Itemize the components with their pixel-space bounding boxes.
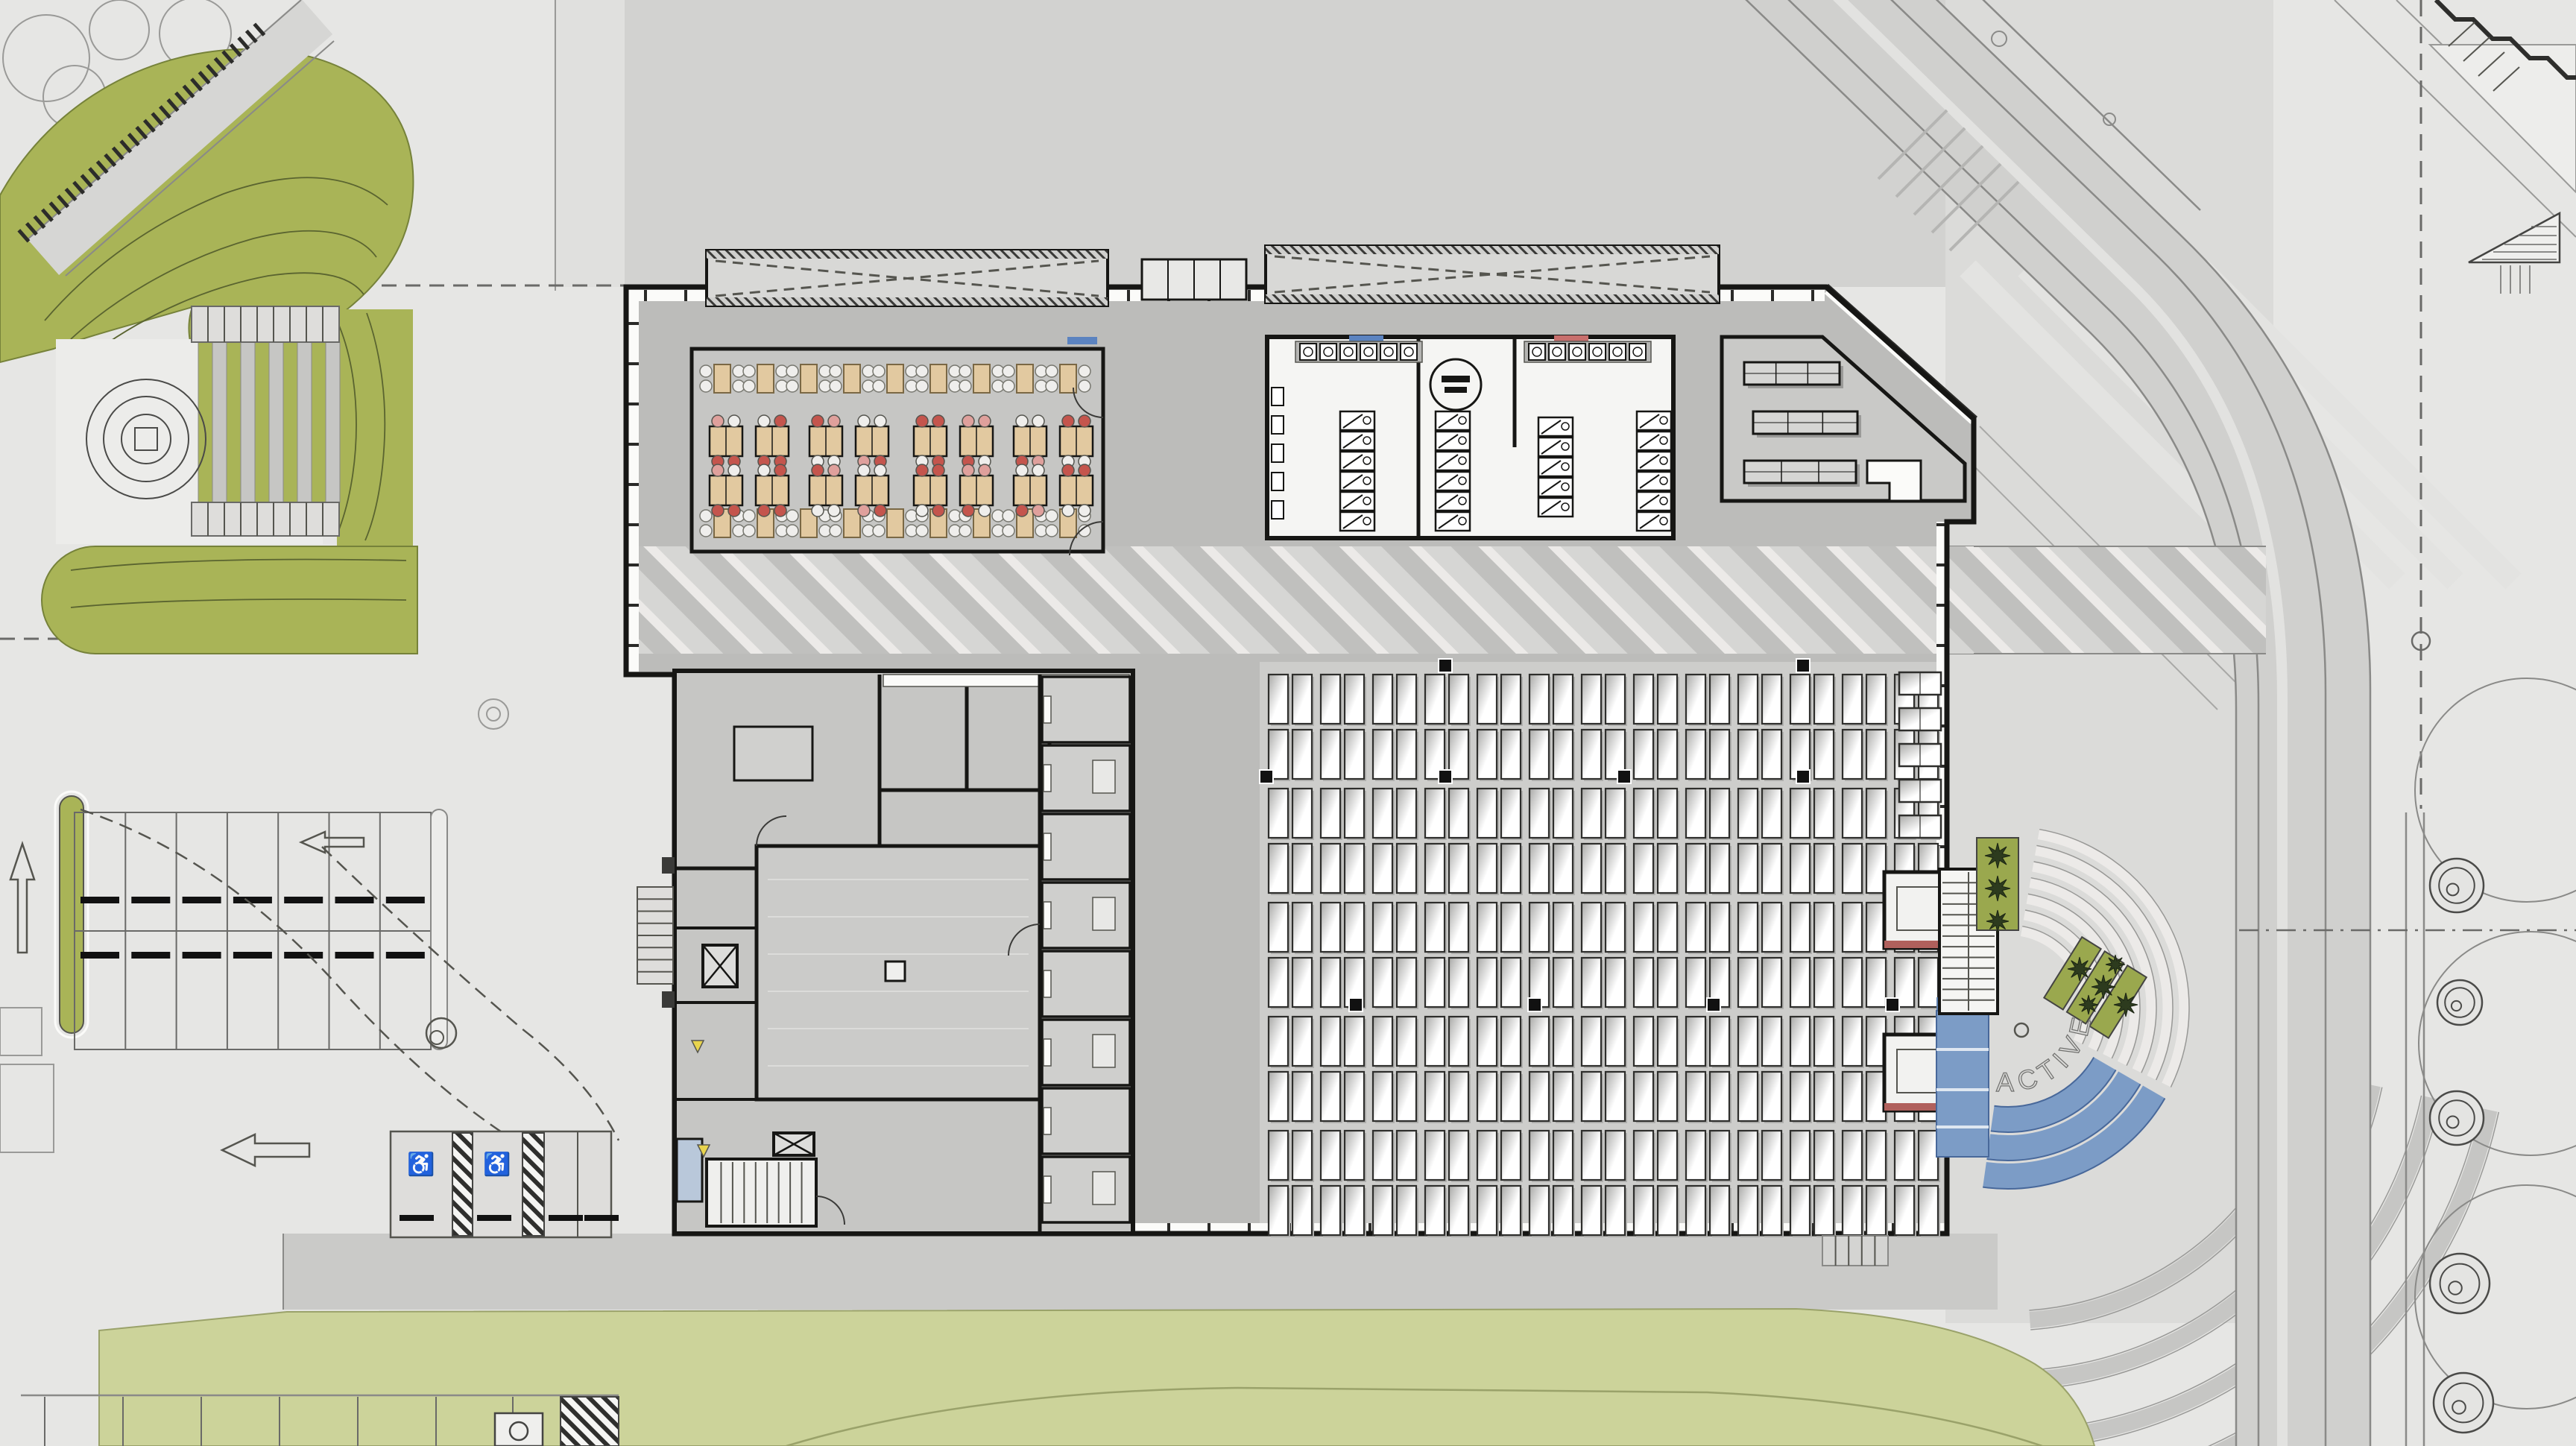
wheel-stop [477, 1215, 511, 1221]
stall-door [1044, 1039, 1051, 1066]
toilet-stall [1340, 512, 1374, 531]
vendor-stall [1042, 677, 1130, 742]
market-stall [1866, 730, 1886, 779]
chair [858, 464, 870, 476]
dining-table-small [844, 364, 860, 393]
market-stall [1373, 1072, 1392, 1121]
chair [828, 464, 840, 476]
chair [962, 415, 974, 427]
market-stall [1582, 958, 1601, 1007]
market-stall [1738, 958, 1758, 1007]
chair [712, 505, 724, 517]
market-stall [1373, 958, 1392, 1007]
market-stall [1501, 730, 1521, 779]
chair [1046, 525, 1058, 537]
market-stall [1425, 903, 1445, 952]
chair [1046, 365, 1058, 377]
play-ramp-strip [326, 342, 340, 502]
chair [1062, 415, 1074, 427]
wheel-stop [400, 1215, 434, 1221]
chair [758, 505, 770, 517]
market-stall [1762, 675, 1781, 724]
toilet-stall [1436, 492, 1470, 511]
wheel-stop [131, 952, 170, 959]
market-stall [1606, 1131, 1625, 1180]
toilet-stall [1436, 411, 1470, 430]
chair [812, 505, 824, 517]
toilet-stall [1538, 498, 1573, 517]
market-stall [1292, 789, 1312, 838]
chair [1079, 505, 1090, 517]
market-stall [1738, 1072, 1758, 1121]
chair [774, 464, 786, 476]
market-stall [1269, 675, 1288, 724]
market-stall [1345, 903, 1364, 952]
market-stall [1658, 675, 1677, 724]
market-stall [1397, 730, 1416, 779]
stair-room [707, 1159, 816, 1226]
market-stall [1843, 1131, 1862, 1180]
dining-room [692, 337, 1103, 555]
market-stall [1321, 1131, 1340, 1180]
market-stall [1686, 730, 1705, 779]
market-stall [1790, 958, 1810, 1007]
chair [962, 505, 974, 517]
market-stall [1634, 730, 1653, 779]
market-stall [1582, 1017, 1601, 1066]
terrace-steps [192, 306, 339, 342]
vendor-stall [1042, 814, 1130, 880]
market-stall [1477, 903, 1497, 952]
market-stall [1529, 1131, 1549, 1180]
plaza-west-strip [554, 0, 626, 287]
market-stall [1292, 730, 1312, 779]
sink [1589, 344, 1606, 360]
market-stall [1814, 903, 1834, 952]
chair [1032, 464, 1044, 476]
market-stall [1501, 958, 1521, 1007]
market-stall [1397, 903, 1416, 952]
stall-door [1044, 765, 1051, 792]
market-stall [1345, 730, 1364, 779]
chair [828, 505, 840, 517]
chair [916, 415, 928, 427]
chair [932, 415, 944, 427]
market-stall [1790, 675, 1810, 724]
market-stall [1529, 789, 1549, 838]
vendor-stall [1042, 883, 1130, 948]
interior-walkway [631, 546, 1974, 654]
market-stall [1606, 958, 1625, 1007]
conifer-tree [1985, 843, 2010, 868]
market-stall [1686, 789, 1705, 838]
market-stall [1658, 844, 1677, 893]
toilet-stall [1340, 411, 1374, 430]
chair [743, 365, 755, 377]
wheel-stop [131, 897, 170, 903]
service-room-blue [677, 1139, 702, 1202]
stall-door [1044, 696, 1051, 723]
sink [1340, 344, 1357, 360]
market-stall [1710, 789, 1729, 838]
market-stall [1449, 1072, 1468, 1121]
chair [1016, 505, 1028, 517]
chair [786, 365, 798, 377]
market-stall [1738, 675, 1758, 724]
toilet-stall [1637, 411, 1671, 430]
wheel-stop [80, 897, 119, 903]
fixture [1272, 501, 1284, 519]
playground [56, 306, 340, 544]
chair [786, 525, 798, 537]
market-stall [1686, 903, 1705, 952]
accessible-parking: ♿♿ [391, 1131, 619, 1237]
market-stall [1345, 1131, 1364, 1180]
market-stall [1321, 1186, 1340, 1235]
chair [874, 415, 886, 427]
market-stall [1553, 1186, 1573, 1235]
market-stall [1449, 1017, 1468, 1066]
market-stall [1425, 789, 1445, 838]
playground-strips [198, 342, 340, 502]
market-stall [1606, 675, 1625, 724]
market-stall [1866, 1131, 1886, 1180]
chair [979, 415, 991, 427]
market-stall [1710, 1186, 1729, 1235]
sink [1529, 344, 1545, 360]
market-stall [1553, 1072, 1573, 1121]
market-stall [1919, 1131, 1938, 1180]
chair [830, 365, 842, 377]
market-stall [1762, 844, 1781, 893]
market-stall [1553, 844, 1573, 893]
toilet-stall [1436, 512, 1470, 531]
market-stall [1686, 1017, 1705, 1066]
chair [700, 365, 712, 377]
chair [1079, 380, 1090, 392]
chair [959, 380, 971, 392]
market-stall [1790, 844, 1810, 893]
planting-strip [60, 796, 83, 1033]
market-stall [1397, 675, 1416, 724]
market-stall [1710, 730, 1729, 779]
market-stall [1501, 1017, 1521, 1066]
wheel-stop [584, 1215, 619, 1221]
market-stall [1321, 1017, 1340, 1066]
market-stall [1814, 675, 1834, 724]
chair [1079, 365, 1090, 377]
chair [786, 380, 798, 392]
market-stall [1477, 730, 1497, 779]
play-ramp-strip [312, 342, 326, 502]
market-stall [1292, 1131, 1312, 1180]
sink [1360, 344, 1377, 360]
chair [1062, 505, 1074, 517]
market-stall [1814, 958, 1834, 1007]
toilet-stall [1538, 417, 1573, 436]
wheel-stop [335, 952, 374, 959]
market-stall [1895, 1186, 1914, 1235]
market-stall [1321, 1072, 1340, 1121]
chair [979, 505, 991, 517]
play-ramp-strip [255, 342, 269, 502]
chair [1003, 525, 1014, 537]
toilet-stall [1340, 452, 1374, 470]
column [1439, 770, 1452, 783]
market-stall [1843, 789, 1862, 838]
dining-table-small [887, 509, 903, 537]
market-stall [1397, 958, 1416, 1007]
market-stall [1843, 1186, 1862, 1235]
equipment [1093, 1172, 1115, 1205]
dining-table-small [757, 364, 774, 393]
toilet-stall [1340, 432, 1374, 450]
toilet-stall [1637, 512, 1671, 531]
chair [743, 525, 755, 537]
market-stall [1762, 1186, 1781, 1235]
chair [962, 464, 974, 476]
market-stall [1477, 844, 1497, 893]
play-ramp-strip [269, 342, 283, 502]
market-stall [1269, 1131, 1288, 1180]
market-stall [1529, 903, 1549, 952]
market-stall [1762, 958, 1781, 1007]
market-stall [1292, 1017, 1312, 1066]
market-stall [1397, 1072, 1416, 1121]
stall-door [1044, 1108, 1051, 1134]
plaza-north [625, 0, 1948, 287]
toilet-stall [1538, 458, 1573, 476]
market-stall [1843, 675, 1862, 724]
market-stall [1738, 1017, 1758, 1066]
market-stall [1843, 903, 1862, 952]
chair [774, 415, 786, 427]
market-stall [1373, 789, 1392, 838]
chair [1003, 365, 1014, 377]
market-stall [1843, 1017, 1862, 1066]
market-stall [1814, 1186, 1834, 1235]
market-stall [1738, 730, 1758, 779]
wheel-stop [183, 897, 221, 903]
sink [1609, 344, 1626, 360]
conifer-tree [2106, 955, 2125, 974]
market-stall [1843, 1072, 1862, 1121]
accessible-icon: ♿ [483, 1151, 511, 1177]
market-stall [1738, 789, 1758, 838]
market-stall [1790, 903, 1810, 952]
market-stall [1292, 958, 1312, 1007]
play-ramp-strip [212, 342, 227, 502]
lawn [99, 1309, 2094, 1446]
chair [858, 415, 870, 427]
market-stall [1634, 1186, 1653, 1235]
market-stall [1501, 675, 1521, 724]
market-stall [1501, 789, 1521, 838]
market-stall [1606, 1186, 1625, 1235]
market-stall [1269, 789, 1288, 838]
market-stall [1790, 1072, 1810, 1121]
chair [786, 510, 798, 522]
market-stall [1321, 844, 1340, 893]
chair [1046, 380, 1058, 392]
chair [1016, 415, 1028, 427]
sink [1401, 344, 1417, 360]
vendor-stall [1042, 951, 1130, 1017]
market-stall [1269, 1072, 1288, 1121]
column [1707, 998, 1720, 1011]
accessible-icon: ♿ [407, 1151, 435, 1177]
market-stall [1292, 1072, 1312, 1121]
chair [916, 464, 928, 476]
market-stall [1529, 1072, 1549, 1121]
market-stall [1449, 903, 1468, 952]
cart-return [495, 1413, 543, 1446]
play-ramp-strip [227, 342, 241, 502]
market-stall [1449, 1186, 1468, 1235]
dining-table-small [1017, 364, 1033, 393]
market-stall [1449, 789, 1468, 838]
toilet-stall [1436, 452, 1470, 470]
toilet-stall [1538, 478, 1573, 496]
sink [1549, 344, 1565, 360]
market-stall [1269, 1017, 1288, 1066]
market-stall [1634, 1072, 1653, 1121]
market-stall [1373, 903, 1392, 952]
market-stall [1658, 1017, 1677, 1066]
market-stall [1582, 844, 1601, 893]
market-stall [1814, 789, 1834, 838]
chair [700, 510, 712, 522]
market-stall [1658, 1072, 1677, 1121]
market-stall [1919, 1186, 1938, 1235]
market-stall [1269, 1186, 1288, 1235]
market-stall [1373, 1186, 1392, 1235]
chair [1046, 510, 1058, 522]
canopy-east [1266, 246, 1719, 303]
market-stall [1738, 1131, 1758, 1180]
wheel-stop [335, 897, 374, 903]
market-stall [1843, 844, 1862, 893]
site-plan-drawing: ♿♿ [0, 0, 2576, 1446]
equipment [1093, 760, 1115, 793]
market-stall [1477, 1186, 1497, 1235]
market-stall [1321, 675, 1340, 724]
market-stall [1321, 903, 1340, 952]
market-stall [1866, 958, 1886, 1007]
blue-steps-straight [1936, 1011, 1989, 1157]
market-stall [1710, 1017, 1729, 1066]
chair [728, 415, 740, 427]
market-stall [1790, 789, 1810, 838]
chair [728, 464, 740, 476]
back-of-house [675, 671, 1133, 1234]
market-stall [1553, 675, 1573, 724]
chair [743, 380, 755, 392]
market-stall [1501, 903, 1521, 952]
market-stall [1634, 958, 1653, 1007]
market-stall [1843, 730, 1862, 779]
dining-table-small [930, 364, 947, 393]
market-stall [1814, 1017, 1834, 1066]
conifer-tree [1985, 876, 2010, 901]
market-stall [1582, 1186, 1601, 1235]
chair [959, 365, 971, 377]
market-stall [1345, 789, 1364, 838]
chair [743, 510, 755, 522]
market-stall [1658, 1186, 1677, 1235]
market-stall [1895, 1131, 1914, 1180]
market-stall [1397, 789, 1416, 838]
market-stall [1425, 1186, 1445, 1235]
stall-door [1044, 1176, 1051, 1203]
market-stall [1658, 903, 1677, 952]
market-stall [1292, 844, 1312, 893]
site-plan: ♿♿ [0, 0, 2576, 1446]
market-stall [1269, 903, 1288, 952]
market-stall [1762, 1131, 1781, 1180]
conifer-tree [2114, 993, 2138, 1017]
sink [1380, 344, 1397, 360]
chair [758, 464, 770, 476]
market-stall [1582, 675, 1601, 724]
market-stall [1658, 789, 1677, 838]
toilet-stall [1340, 492, 1374, 511]
market-stall [1710, 1131, 1729, 1180]
market-stall [1710, 903, 1729, 952]
market-stall [1843, 958, 1862, 1007]
market-stall [1397, 1186, 1416, 1235]
column [1617, 770, 1631, 783]
market-stall [1686, 958, 1705, 1007]
market-stall [1269, 844, 1288, 893]
market-stall [1582, 789, 1601, 838]
sink [1320, 344, 1336, 360]
chair [1016, 464, 1028, 476]
market-stall [1606, 903, 1625, 952]
toilet-stall [1538, 438, 1573, 456]
vendor-stall [1042, 1020, 1130, 1085]
toilet-stall [1637, 432, 1671, 450]
market-stall [1425, 1017, 1445, 1066]
market-stall [1397, 1131, 1416, 1180]
market-stall [1634, 903, 1653, 952]
chair [874, 464, 886, 476]
wheel-stop [233, 952, 272, 959]
market-stall [1425, 844, 1445, 893]
market-stall [1449, 844, 1468, 893]
wheel-stop [233, 897, 272, 903]
stall-door [1044, 902, 1051, 929]
column [1796, 770, 1810, 783]
chair [916, 380, 928, 392]
fixture [1272, 444, 1284, 462]
access-aisle [452, 1133, 473, 1236]
chair [812, 464, 824, 476]
column [1260, 770, 1273, 783]
chair [830, 525, 842, 537]
toilet-stall [1637, 452, 1671, 470]
market-stall [1529, 1017, 1549, 1066]
market-stall [1762, 789, 1781, 838]
conifer-tree [2068, 957, 2092, 981]
chair [858, 505, 870, 517]
market-stall [1686, 675, 1705, 724]
se-steps [1822, 1236, 1888, 1266]
chair [873, 525, 885, 537]
dining-table-small [801, 364, 817, 393]
chair [959, 525, 971, 537]
market-stall [1292, 675, 1312, 724]
